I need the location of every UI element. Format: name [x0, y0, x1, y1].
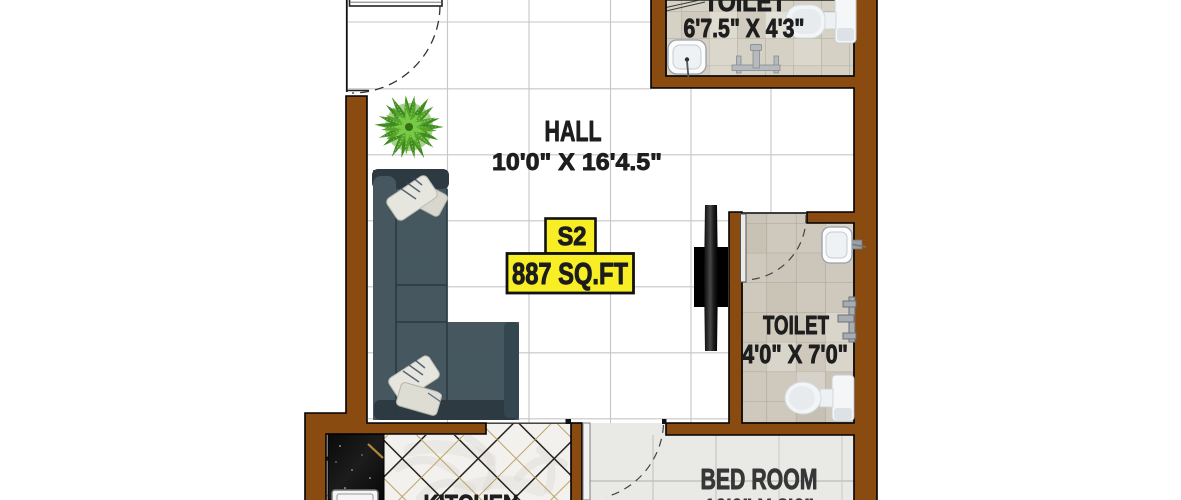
svg-text:TOILET: TOILET: [763, 310, 829, 340]
svg-text:10'0" X 16'4.5": 10'0" X 16'4.5": [492, 149, 662, 176]
svg-text:4'0" X 7'0": 4'0" X 7'0": [742, 339, 848, 369]
svg-text:BED ROOM: BED ROOM: [701, 464, 818, 496]
svg-text:HALL: HALL: [545, 116, 602, 148]
svg-text:6'7.5" X 4'3": 6'7.5" X 4'3": [684, 13, 805, 43]
svg-text:KITCHEN: KITCHEN: [424, 489, 519, 500]
svg-text:S2: S2: [558, 221, 587, 251]
svg-text:10'0" X 8'6": 10'0" X 8'6": [704, 493, 814, 500]
svg-text:887 SQ.FT: 887 SQ.FT: [512, 256, 628, 291]
